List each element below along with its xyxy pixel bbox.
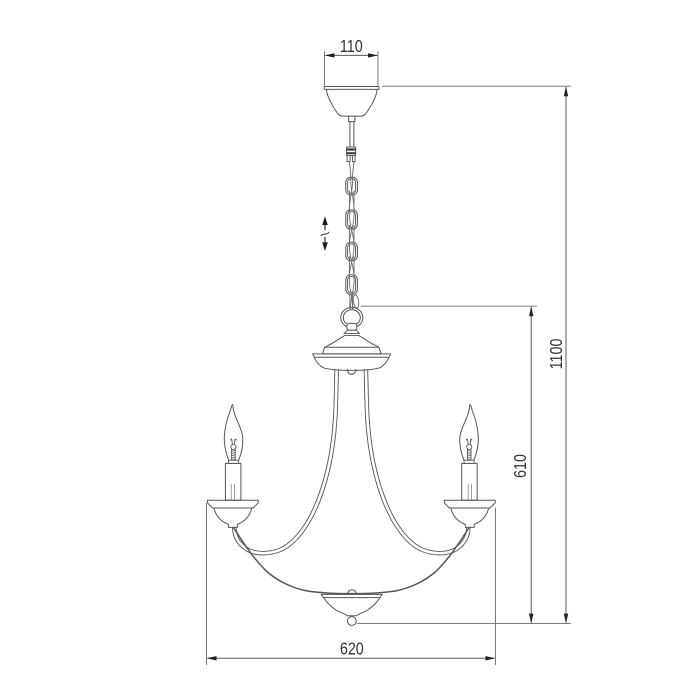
svg-text:110: 110 [340, 38, 363, 57]
svg-text:1100: 1100 [548, 338, 567, 369]
svg-text:620: 620 [340, 640, 364, 659]
svg-text:610: 610 [512, 454, 531, 478]
